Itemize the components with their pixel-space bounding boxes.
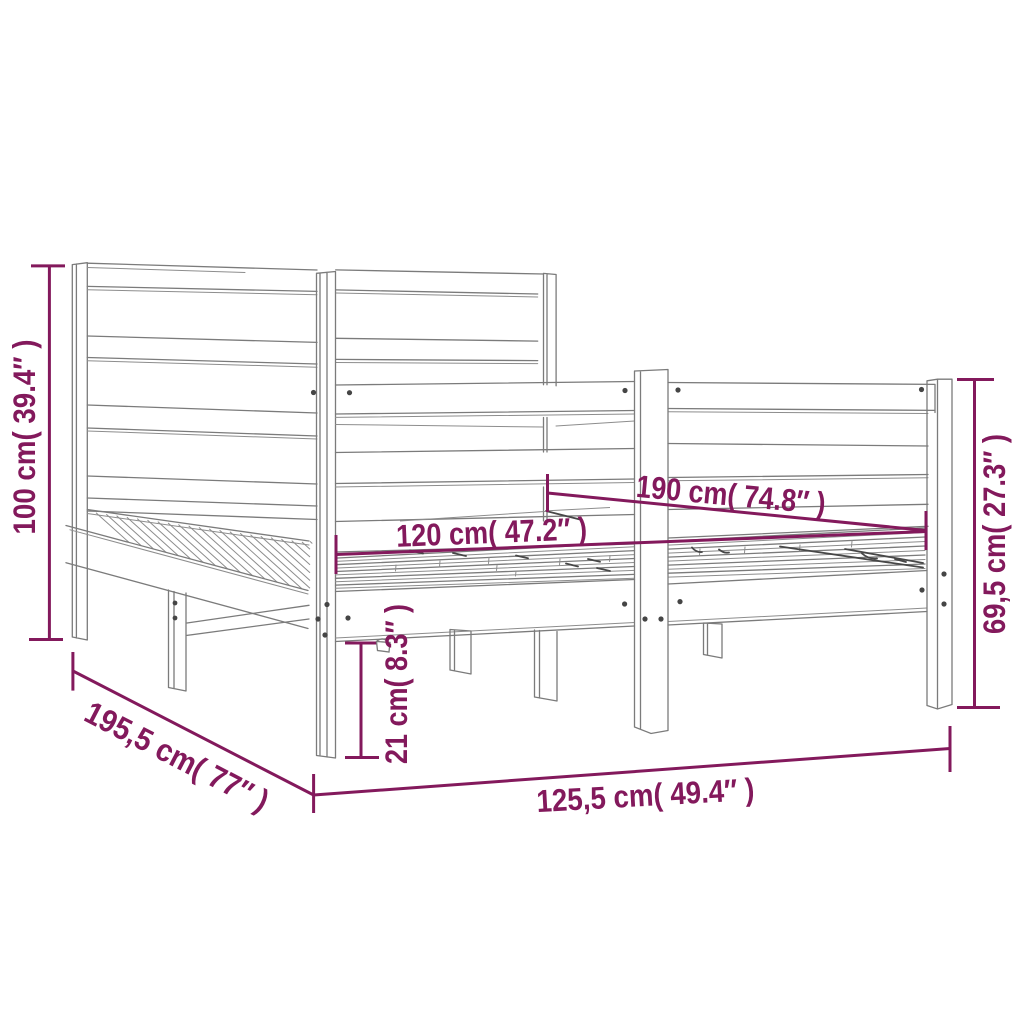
- svg-text:69,5 cm( 27.3″ ): 69,5 cm( 27.3″ ): [976, 434, 1012, 634]
- svg-text:120 cm( 47.2″ ): 120 cm( 47.2″ ): [395, 510, 587, 554]
- svg-text:21 cm( 8.3″ ): 21 cm( 8.3″ ): [378, 604, 414, 764]
- svg-text:100 cm( 39.4″ ): 100 cm( 39.4″ ): [6, 340, 42, 535]
